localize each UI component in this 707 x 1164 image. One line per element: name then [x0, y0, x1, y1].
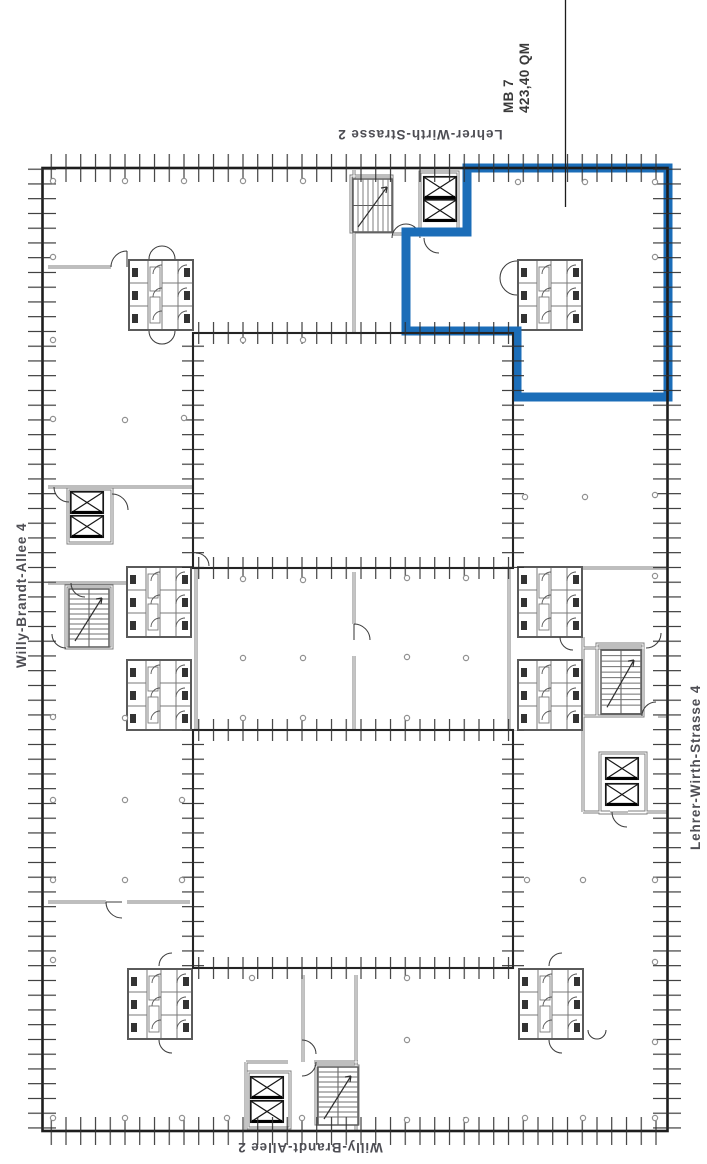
column-dot: [300, 337, 305, 342]
column-dot: [249, 975, 254, 980]
column-dot: [50, 337, 55, 342]
column-dot: [122, 178, 127, 183]
column-dot: [404, 715, 409, 720]
column-dot: [122, 417, 127, 422]
column-dot: [50, 254, 55, 259]
column-dot: [300, 178, 305, 183]
floor-plan-canvas: MB 7 423,40 QM Lehrer-Wirth-Strasse 2 Wi…: [0, 0, 707, 1164]
column-dot: [404, 654, 409, 659]
column-dot: [582, 179, 587, 184]
column-dot: [179, 1115, 184, 1120]
column-dot: [652, 959, 657, 964]
courtyards: [193, 333, 513, 968]
column-dot: [122, 797, 127, 802]
column-dot: [522, 494, 527, 499]
column-dot: [181, 415, 186, 420]
column-dot: [50, 714, 55, 719]
column-dot: [463, 575, 468, 580]
column-dot: [179, 877, 184, 882]
column-dot: [240, 178, 245, 183]
floor-plan-page: MB 7 423,40 QM Lehrer-Wirth-Strasse 2 Wi…: [0, 0, 707, 1164]
column-dot: [50, 957, 55, 962]
column-dot: [652, 877, 657, 882]
column-dot: [652, 1115, 657, 1120]
column-dot: [652, 1039, 657, 1044]
column-dot: [652, 492, 657, 497]
column-dot: [240, 715, 245, 720]
column-dot: [50, 178, 55, 183]
street-label-right: Lehrer-Wirth-Strasse 4: [688, 685, 703, 850]
column-dot: [50, 797, 55, 802]
unit-label: MB 7 423,40 QM: [501, 43, 532, 113]
column-dot: [299, 1115, 304, 1120]
unit-area: 423,40 QM: [517, 43, 532, 113]
column-dot: [652, 573, 657, 578]
column-dot: [122, 877, 127, 882]
column-dot: [515, 179, 520, 184]
column-dot: [50, 877, 55, 882]
column-dot: [300, 577, 305, 582]
doors: [52, 224, 661, 1076]
column-dot: [404, 975, 409, 980]
column-dot: [652, 179, 657, 184]
column-dot: [463, 655, 468, 660]
column-dot: [181, 178, 186, 183]
column-dot: [580, 1115, 585, 1120]
column-dot: [224, 1115, 229, 1120]
column-dot: [404, 1037, 409, 1042]
unit-name: MB 7: [501, 79, 516, 113]
column-dot: [122, 715, 127, 720]
column-dot: [524, 877, 529, 882]
column-dot: [240, 337, 245, 342]
column-dot: [240, 576, 245, 581]
column-dot: [179, 797, 184, 802]
column-dot: [50, 416, 55, 421]
column-dot: [300, 715, 305, 720]
street-label-left: Willy-Brandt-Allee 4: [14, 523, 29, 668]
column-dot: [300, 655, 305, 660]
street-label-top: Lehrer-Wirth-Strasse 2: [337, 127, 502, 142]
column-dot: [582, 494, 587, 499]
column-dot: [50, 1115, 55, 1120]
column-dot: [522, 1115, 527, 1120]
column-dot: [240, 655, 245, 660]
column-dot: [404, 1117, 409, 1122]
street-label-bottom: Willy-Brandt-Allee 2: [237, 1140, 382, 1155]
column-dot: [580, 877, 585, 882]
column-dot: [463, 1117, 468, 1122]
column-dot: [404, 575, 409, 580]
column-dot: [122, 1115, 127, 1120]
column-dot: [652, 254, 657, 259]
